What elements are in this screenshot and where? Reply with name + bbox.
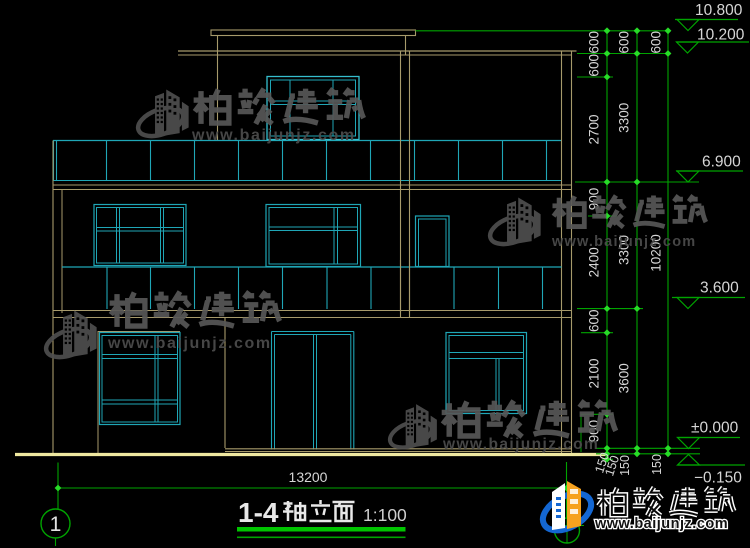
svg-text:600: 600 — [617, 31, 632, 54]
svg-text:2700: 2700 — [587, 114, 602, 144]
svg-text:1:100: 1:100 — [363, 505, 407, 525]
svg-text:2100: 2100 — [587, 358, 602, 388]
svg-text:600: 600 — [649, 31, 664, 54]
svg-text:13200: 13200 — [289, 469, 328, 485]
svg-text:600: 600 — [587, 54, 602, 77]
svg-text:600: 600 — [587, 31, 602, 54]
svg-text:3600: 3600 — [617, 363, 632, 393]
svg-text:www.baijunjz.com: www.baijunjz.com — [594, 516, 728, 532]
svg-text:6.900: 6.900 — [702, 154, 741, 171]
svg-text:www.baijunjz.com: www.baijunjz.com — [191, 127, 356, 144]
svg-text:−0.150: −0.150 — [694, 470, 742, 487]
svg-text:www.baijunjz.com: www.baijunjz.com — [442, 436, 599, 453]
svg-text:3.600: 3.600 — [700, 280, 739, 297]
svg-text:150: 150 — [650, 454, 664, 475]
svg-text:±0.000: ±0.000 — [691, 420, 739, 437]
svg-text:3300: 3300 — [617, 103, 632, 133]
svg-text:10.800: 10.800 — [695, 2, 743, 19]
svg-text:600: 600 — [587, 309, 602, 332]
svg-text:www.baijunjz.com: www.baijunjz.com — [551, 234, 696, 250]
svg-text:www.baijunjz.com: www.baijunjz.com — [107, 335, 272, 352]
svg-text:2400: 2400 — [587, 247, 602, 277]
svg-text:150: 150 — [618, 455, 632, 476]
svg-text:1: 1 — [50, 513, 62, 536]
svg-text:1-4: 1-4 — [238, 497, 279, 528]
svg-text:10.200: 10.200 — [697, 27, 745, 44]
